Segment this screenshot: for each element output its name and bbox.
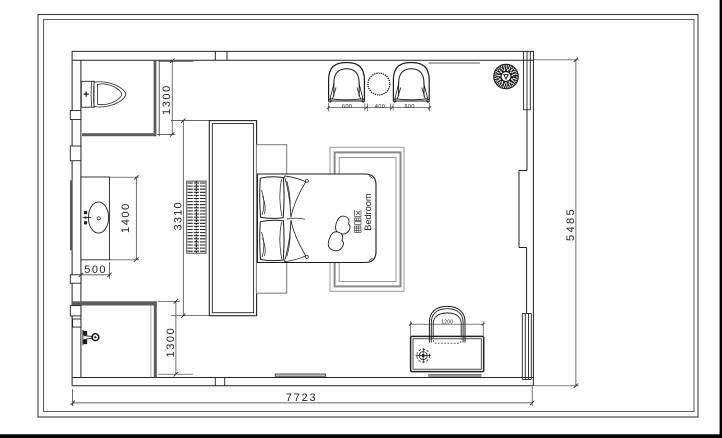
svg-text:1200: 1200	[441, 319, 453, 325]
svg-text:Bedroom: Bedroom	[363, 193, 373, 231]
svg-text:1400: 1400	[120, 202, 132, 233]
svg-text:1300: 1300	[165, 327, 177, 358]
svg-text:400: 400	[375, 104, 385, 110]
svg-text:3310: 3310	[173, 201, 185, 230]
svg-text:600: 600	[405, 104, 415, 110]
svg-text:600: 600	[342, 104, 352, 110]
svg-text:1300: 1300	[161, 84, 173, 115]
svg-text:7723: 7723	[286, 392, 318, 404]
svg-text:5485: 5485	[565, 207, 577, 241]
svg-text:500: 500	[84, 264, 107, 276]
